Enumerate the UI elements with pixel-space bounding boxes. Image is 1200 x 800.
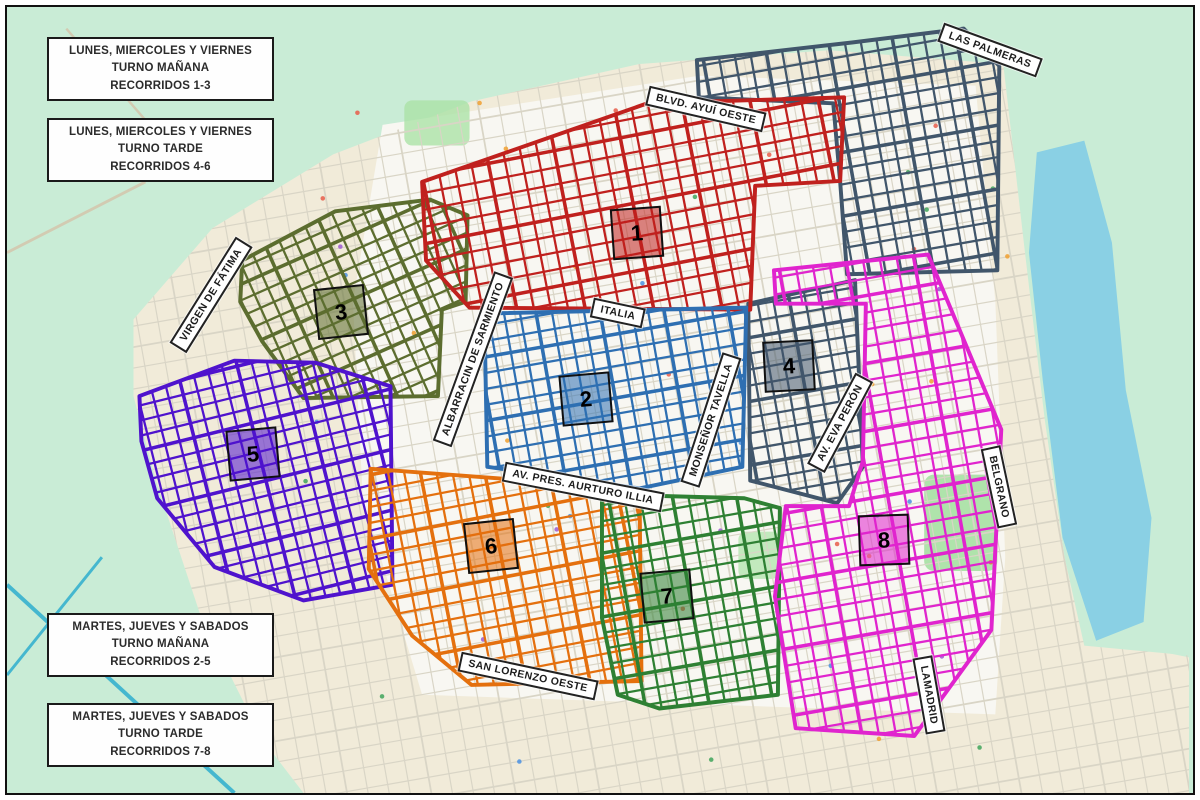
map-frame: BLVD. AYUÍ OESTELAS PALMERASITALIAALBARR… <box>5 5 1195 795</box>
schedule-days: LUNES, MIERCOLES Y VIERNES <box>69 124 252 141</box>
schedule-shift: TURNO TARDE <box>118 726 203 743</box>
schedule-shift: TURNO MAÑANA <box>112 636 210 653</box>
schedule-box-tue-thu-sat-afternoon: MARTES, JUEVES Y SABADOS TURNO TARDE REC… <box>47 703 274 767</box>
schedule-routes: RECORRIDOS 4-6 <box>110 159 211 176</box>
schedule-box-mon-wed-fri-morning: LUNES, MIERCOLES Y VIERNES TURNO MAÑANA … <box>47 37 274 101</box>
map-page: BLVD. AYUÍ OESTELAS PALMERASITALIAALBARR… <box>0 0 1200 800</box>
schedule-days: MARTES, JUEVES Y SABADOS <box>72 619 248 636</box>
schedule-days: MARTES, JUEVES Y SABADOS <box>72 709 248 726</box>
schedule-box-tue-thu-sat-morning: MARTES, JUEVES Y SABADOS TURNO MAÑANA RE… <box>47 613 274 677</box>
schedule-routes: RECORRIDOS 7-8 <box>110 744 211 761</box>
schedule-days: LUNES, MIERCOLES Y VIERNES <box>69 43 252 60</box>
schedule-routes: RECORRIDOS 1-3 <box>110 78 211 95</box>
schedule-box-mon-wed-fri-afternoon: LUNES, MIERCOLES Y VIERNES TURNO TARDE R… <box>47 118 274 182</box>
schedule-routes: RECORRIDOS 2-5 <box>110 654 211 671</box>
schedule-shift: TURNO MAÑANA <box>112 60 210 77</box>
schedule-shift: TURNO TARDE <box>118 141 203 158</box>
